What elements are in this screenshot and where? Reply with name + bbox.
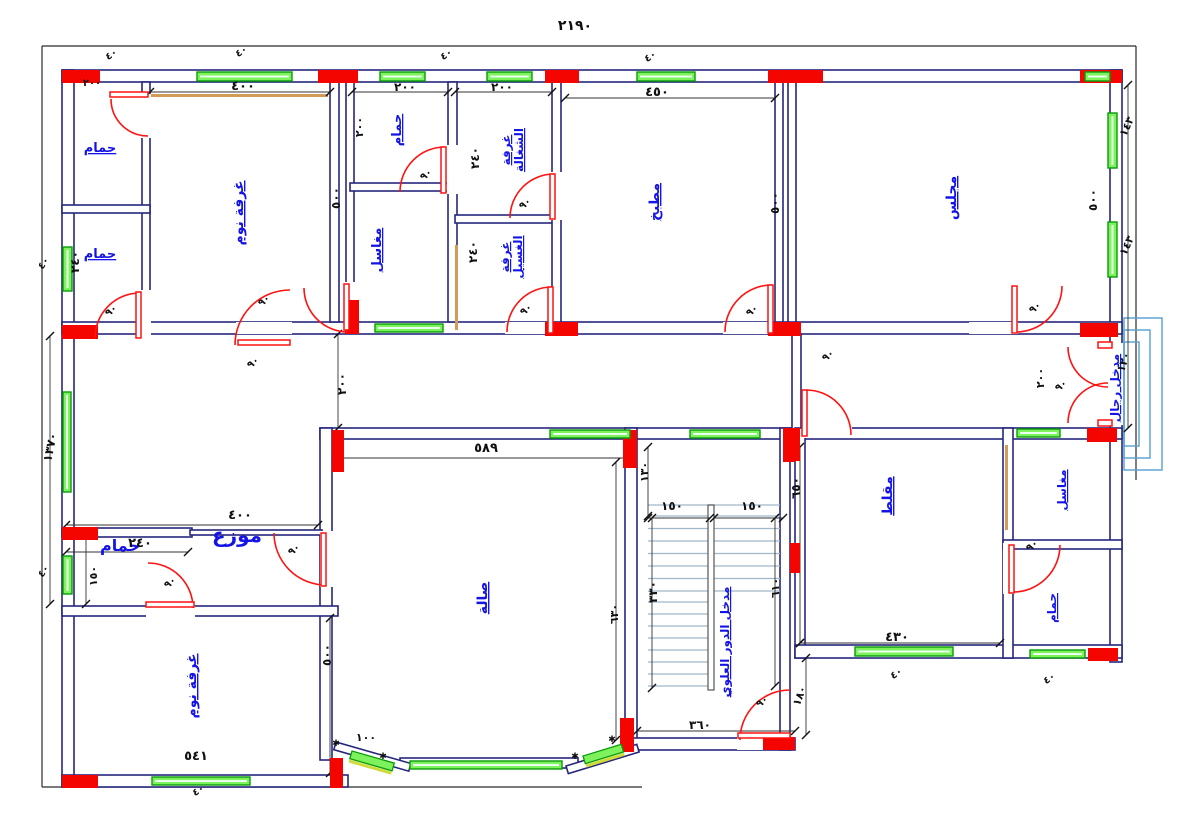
- column: [1087, 428, 1117, 442]
- door-tag: ٩٠: [820, 348, 836, 364]
- door-opening: [447, 145, 458, 194]
- wall-accent: [455, 245, 458, 330]
- dim-label: ٣٣٠: [646, 581, 660, 603]
- dim-label: ٢٤٠: [468, 147, 482, 169]
- door-leaf: [802, 390, 807, 436]
- stairs-stringer: [708, 505, 714, 690]
- room-label: موزع: [212, 523, 262, 547]
- column: [332, 430, 344, 472]
- room-label: غرفةالشغالة: [499, 128, 526, 172]
- door-leaf: [321, 533, 326, 586]
- room-label: مغاسل: [370, 228, 385, 273]
- column: [545, 70, 579, 83]
- column: [763, 737, 795, 750]
- room-label: مقلط: [880, 476, 896, 515]
- room-label: مدخل الدور العلوي: [718, 587, 733, 698]
- window-tag: ٤٠: [642, 49, 658, 65]
- room-label: حمام: [84, 247, 117, 262]
- door-opening: [141, 94, 151, 138]
- window-tag: ٤٠: [1041, 671, 1057, 687]
- column: [330, 758, 343, 788]
- dim-label: ٢٤٠: [466, 241, 480, 263]
- door-leaf: [548, 287, 553, 333]
- window-tag: ٤٠: [438, 47, 454, 63]
- dim-label: ٦١٠: [769, 578, 782, 598]
- door-swing-arc: [1068, 383, 1108, 423]
- dim-label: ٥٤١: [184, 749, 208, 764]
- dim-label: ١٣٠: [638, 462, 651, 482]
- door-tag: ٩٠: [256, 293, 272, 309]
- entry-steps: [1124, 318, 1162, 470]
- dim-label: ٥٨٩: [474, 441, 498, 456]
- wall: [62, 606, 338, 616]
- dim-label: ١٥٠: [741, 499, 763, 513]
- door-leaf: [136, 292, 141, 338]
- door-opening: [141, 290, 151, 340]
- room-label: حمام: [84, 141, 117, 156]
- door-leaf: [1012, 286, 1017, 333]
- dim-label: ١٣٧٠: [40, 431, 60, 463]
- door-leaf: [238, 340, 290, 345]
- door-leaf: [441, 147, 446, 193]
- room-label: مجلس: [944, 176, 960, 220]
- door-opening: [723, 322, 774, 334]
- wall-accent: [150, 94, 328, 97]
- room-label: غرفة نوم: [184, 653, 200, 718]
- door-tag: ٩٠: [754, 694, 770, 710]
- dim-label: ٢٠٠: [491, 80, 513, 94]
- wall: [62, 205, 150, 213]
- dim-label: ٤٥٠: [645, 85, 669, 100]
- door-leaf: [1098, 342, 1112, 348]
- dim-label: ٦٥٠: [789, 477, 803, 499]
- wall: [625, 428, 637, 750]
- dim-label: ٢٠٠: [394, 80, 416, 94]
- door-tag: ٩٠: [286, 542, 302, 558]
- dim-label: ٥٠٠: [329, 187, 343, 209]
- door-leaf: [550, 174, 555, 219]
- column: [318, 70, 358, 83]
- dim-label: ٢١٩٠: [558, 18, 592, 34]
- tick-star: ✱: [332, 739, 340, 749]
- door-opening: [969, 322, 1018, 334]
- door-tag: ٩٠: [245, 355, 261, 371]
- floor-plan-drawing: ✱✱✱✱حمامحمامغرفة نومحماممغاسلغرفةالشغالة…: [0, 0, 1200, 823]
- door-leaf: [1009, 545, 1014, 593]
- wall: [788, 82, 796, 322]
- room-label: غرفةالغسيل: [498, 235, 525, 278]
- door-swing-arc: [1013, 545, 1060, 592]
- door-tag: ٩٠: [103, 303, 119, 319]
- tick-star: ✱: [571, 752, 579, 762]
- dim-label: ٢٠٠: [1034, 368, 1047, 388]
- dim-label: ٥٠٠: [1086, 189, 1100, 211]
- dim-label: ١٠٠: [356, 731, 376, 744]
- dim-label: ١٥٠: [661, 499, 683, 513]
- dim-label: ٢٤٠: [68, 251, 82, 273]
- dim-label: ٤٣٠: [885, 630, 909, 645]
- tick-star: ✱: [379, 752, 387, 762]
- dim-label: ١٥٠: [87, 566, 100, 586]
- column: [1088, 648, 1118, 661]
- column: [1080, 323, 1118, 337]
- door-swing-arc: [1068, 347, 1108, 387]
- window-tag: ٤٠: [103, 47, 119, 63]
- dim-label: ٥٠٠: [768, 192, 782, 214]
- door-tag: ٩٠: [518, 302, 534, 318]
- wall: [792, 334, 801, 433]
- door-swing-arc: [510, 174, 554, 218]
- window-tag: ٤٠: [36, 255, 52, 271]
- door-leaf: [738, 733, 790, 738]
- column: [790, 428, 800, 461]
- wall: [62, 322, 1122, 334]
- column: [62, 325, 98, 339]
- room-label: مغاسل: [1055, 469, 1069, 510]
- room-label: غرفة نوم: [231, 180, 247, 245]
- dim-label: ٣٦٠: [689, 718, 711, 732]
- column: [790, 543, 800, 573]
- column: [768, 70, 823, 83]
- room-label: صالة: [475, 582, 491, 615]
- door-leaf: [146, 602, 194, 607]
- door-leaf: [110, 92, 148, 97]
- door-tag: ٩٠: [1053, 378, 1069, 394]
- door-leaf: [344, 284, 349, 330]
- door-tag: ٩٠: [1027, 300, 1043, 316]
- dim-label: ٢٠٠: [83, 78, 101, 89]
- room-label: حمام: [390, 114, 405, 147]
- room-label: حمام: [1045, 593, 1060, 623]
- wall-accent: [1005, 445, 1008, 530]
- dim-label: ٢٠٠: [353, 117, 366, 137]
- door-tag: ٩٠: [517, 196, 533, 212]
- column: [62, 527, 98, 540]
- tick-star: ✱: [608, 735, 616, 745]
- door-tag: ٩٠: [162, 575, 178, 591]
- wall: [1003, 540, 1122, 549]
- dim-label: ٥٠٠: [320, 644, 334, 666]
- window-tag: ٤٠: [888, 666, 904, 682]
- dim-label: ٢٠٠: [335, 373, 349, 395]
- door-leaf: [768, 285, 773, 333]
- dim-label: ٦٣٠: [608, 604, 621, 624]
- door-tag: ٩٠: [418, 167, 434, 183]
- dim-label: ٤٠٠: [228, 508, 252, 523]
- floor-plan-canvas: ✱✱✱✱حمامحمامغرفة نومحماممغاسلغرفةالشغالة…: [0, 0, 1200, 823]
- door-opening: [802, 427, 852, 438]
- dim-label: ٤٠٠: [231, 79, 255, 94]
- door-opening: [236, 322, 292, 334]
- wall: [455, 215, 557, 223]
- room-label: مطبخ: [647, 183, 663, 221]
- door-tag: ٩٠: [744, 303, 760, 319]
- column: [62, 775, 98, 788]
- dim-label: ٢٤٠: [128, 536, 152, 551]
- door-swing-arc: [274, 533, 326, 585]
